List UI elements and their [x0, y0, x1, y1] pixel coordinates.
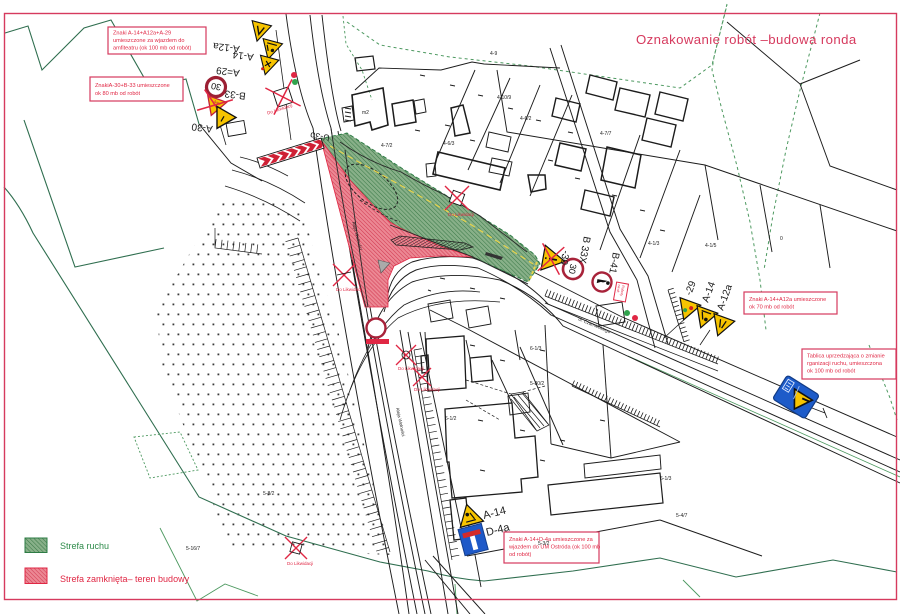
svg-text:Do Likwidacji: Do Likwidacji	[414, 387, 440, 392]
svg-text:5-8/2: 5-8/2	[263, 491, 275, 497]
svg-text:Tablica uprzedzająca o zmianie: Tablica uprzedzająca o zmianie	[807, 354, 885, 360]
svg-text:Do Likwidacji: Do Likwidacji	[336, 287, 362, 292]
svg-text:4-1/5: 4-1/5	[705, 243, 717, 249]
svg-text:Do Likwidacji: Do Likwidacji	[448, 212, 474, 217]
svg-text:Znaki A-14+A12a umieszczone: Znaki A-14+A12a umieszczone	[749, 297, 826, 303]
svg-text:od robót): od robót)	[509, 552, 532, 558]
svg-text:4-7/7: 4-7/7	[600, 131, 612, 137]
svg-text:Oznakowanie robót –budowa rond: Oznakowanie robót –budowa ronda	[636, 32, 857, 47]
svg-text:5-3/2: 5-3/2	[538, 541, 550, 547]
svg-text:amfiteatru (ok 100 mb od robót: amfiteatru (ok 100 mb od robót)	[113, 46, 191, 52]
svg-text:4-7/2: 4-7/2	[381, 143, 393, 149]
svg-text:ZnakiA-30+B-33 umieszczone: ZnakiA-30+B-33 umieszczone	[95, 83, 170, 89]
svg-text:umieszczone za wjazdem do: umieszczone za wjazdem do	[113, 38, 185, 44]
svg-text:Znaki A-14+D-4a umieszczone za: Znaki A-14+D-4a umieszczone za	[509, 537, 594, 543]
svg-text:6-1/3: 6-1/3	[530, 346, 542, 352]
svg-text:4-10/9: 4-10/9	[497, 95, 511, 101]
svg-text:Znaki A-14+A12a+A-29: Znaki A-14+A12a+A-29	[113, 31, 171, 37]
svg-text:5-16/7: 5-16/7	[186, 546, 200, 552]
svg-text:ok 100 mb od robót: ok 100 mb od robót	[807, 369, 856, 375]
svg-text:Do Likwidacji: Do Likwidacji	[398, 366, 424, 371]
svg-text:4-6/2: 4-6/2	[520, 116, 532, 122]
svg-text:30: 30	[210, 81, 222, 93]
svg-text:ok 80 mb od robót: ok 80 mb od robót	[95, 91, 141, 97]
svg-text:rganizacji ruchu, umieszczona: rganizacji ruchu, umieszczona	[807, 361, 883, 367]
svg-text:Do Likwidacji: Do Likwidacji	[287, 561, 313, 566]
svg-text:0: 0	[780, 236, 783, 242]
svg-text:4-9: 4-9	[490, 51, 497, 57]
svg-text:Strefa ruchu: Strefa ruchu	[60, 541, 109, 551]
svg-text:4-6/3: 4-6/3	[443, 141, 455, 147]
svg-text:6-1/3: 6-1/3	[660, 476, 672, 482]
svg-text:m2: m2	[362, 110, 369, 116]
svg-text:6-1/2: 6-1/2	[445, 416, 457, 422]
svg-text:4-1/3: 4-1/3	[648, 241, 660, 247]
svg-text:Strefa zamknięta– teren budowy: Strefa zamknięta– teren budowy	[60, 574, 190, 584]
svg-text:5-80/2: 5-80/2	[530, 381, 544, 387]
svg-text:5-4/7: 5-4/7	[676, 513, 688, 519]
svg-text:wjazdem do UM Ostróda (ok 100: wjazdem do UM Ostróda (ok 100 mb	[508, 545, 600, 551]
svg-text:ok 70 mb od robót: ok 70 mb od robót	[749, 305, 795, 311]
